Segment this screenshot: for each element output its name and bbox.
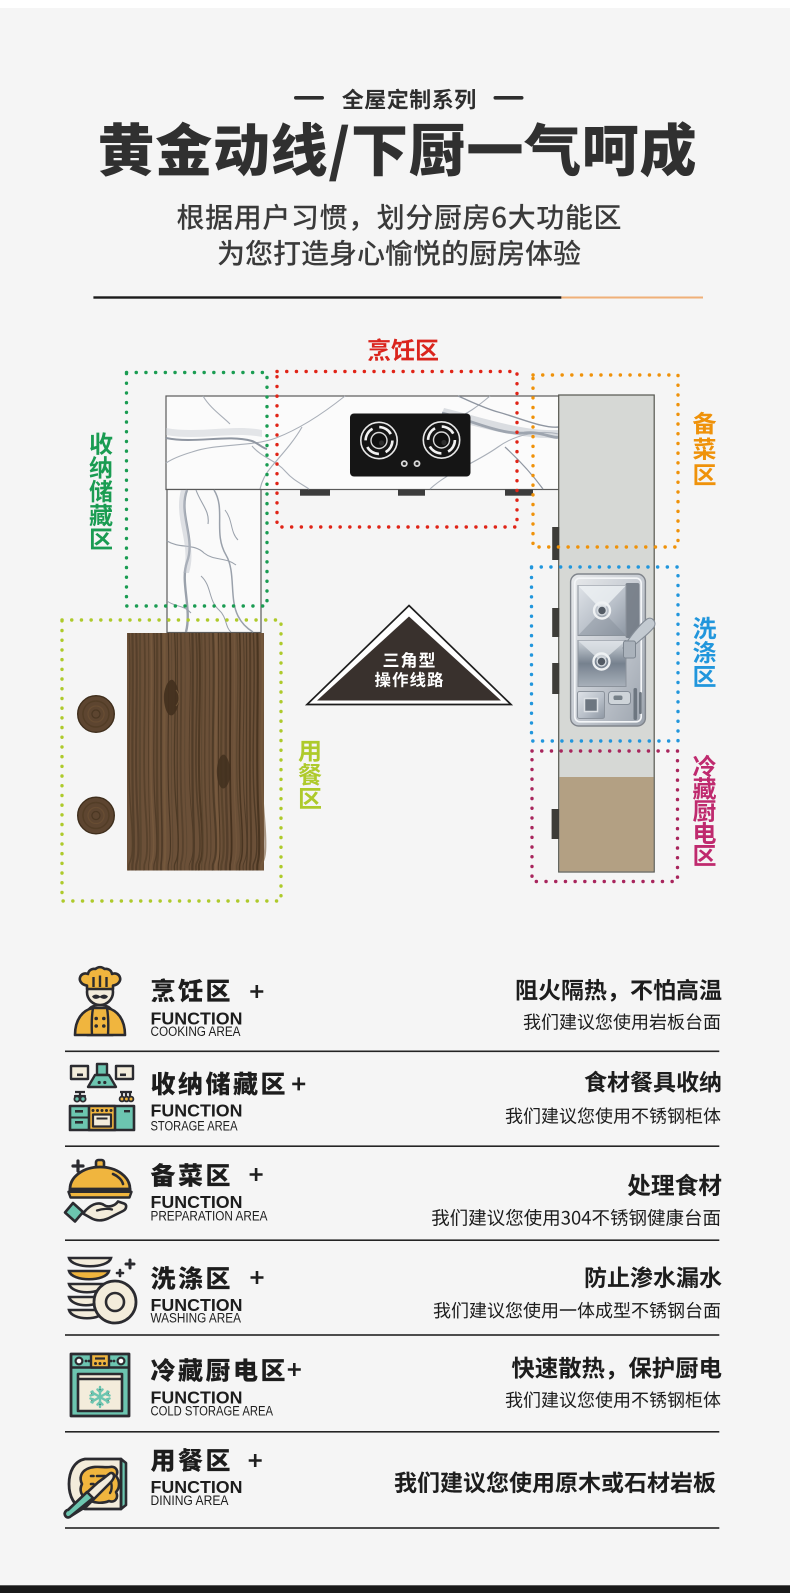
- svg-text:FUNCTION: FUNCTION: [151, 1101, 243, 1121]
- svg-text:WASHING AREA: WASHING AREA: [151, 1311, 242, 1326]
- svg-text:COOKING AREA: COOKING AREA: [151, 1024, 241, 1039]
- svg-text:PREPARATION AREA: PREPARATION AREA: [151, 1209, 268, 1224]
- svg-text:DINING AREA: DINING AREA: [151, 1493, 229, 1508]
- svg-text:STORAGE AREA: STORAGE AREA: [151, 1119, 238, 1134]
- svg-text:COLD STORAGE AREA: COLD STORAGE AREA: [151, 1404, 274, 1419]
